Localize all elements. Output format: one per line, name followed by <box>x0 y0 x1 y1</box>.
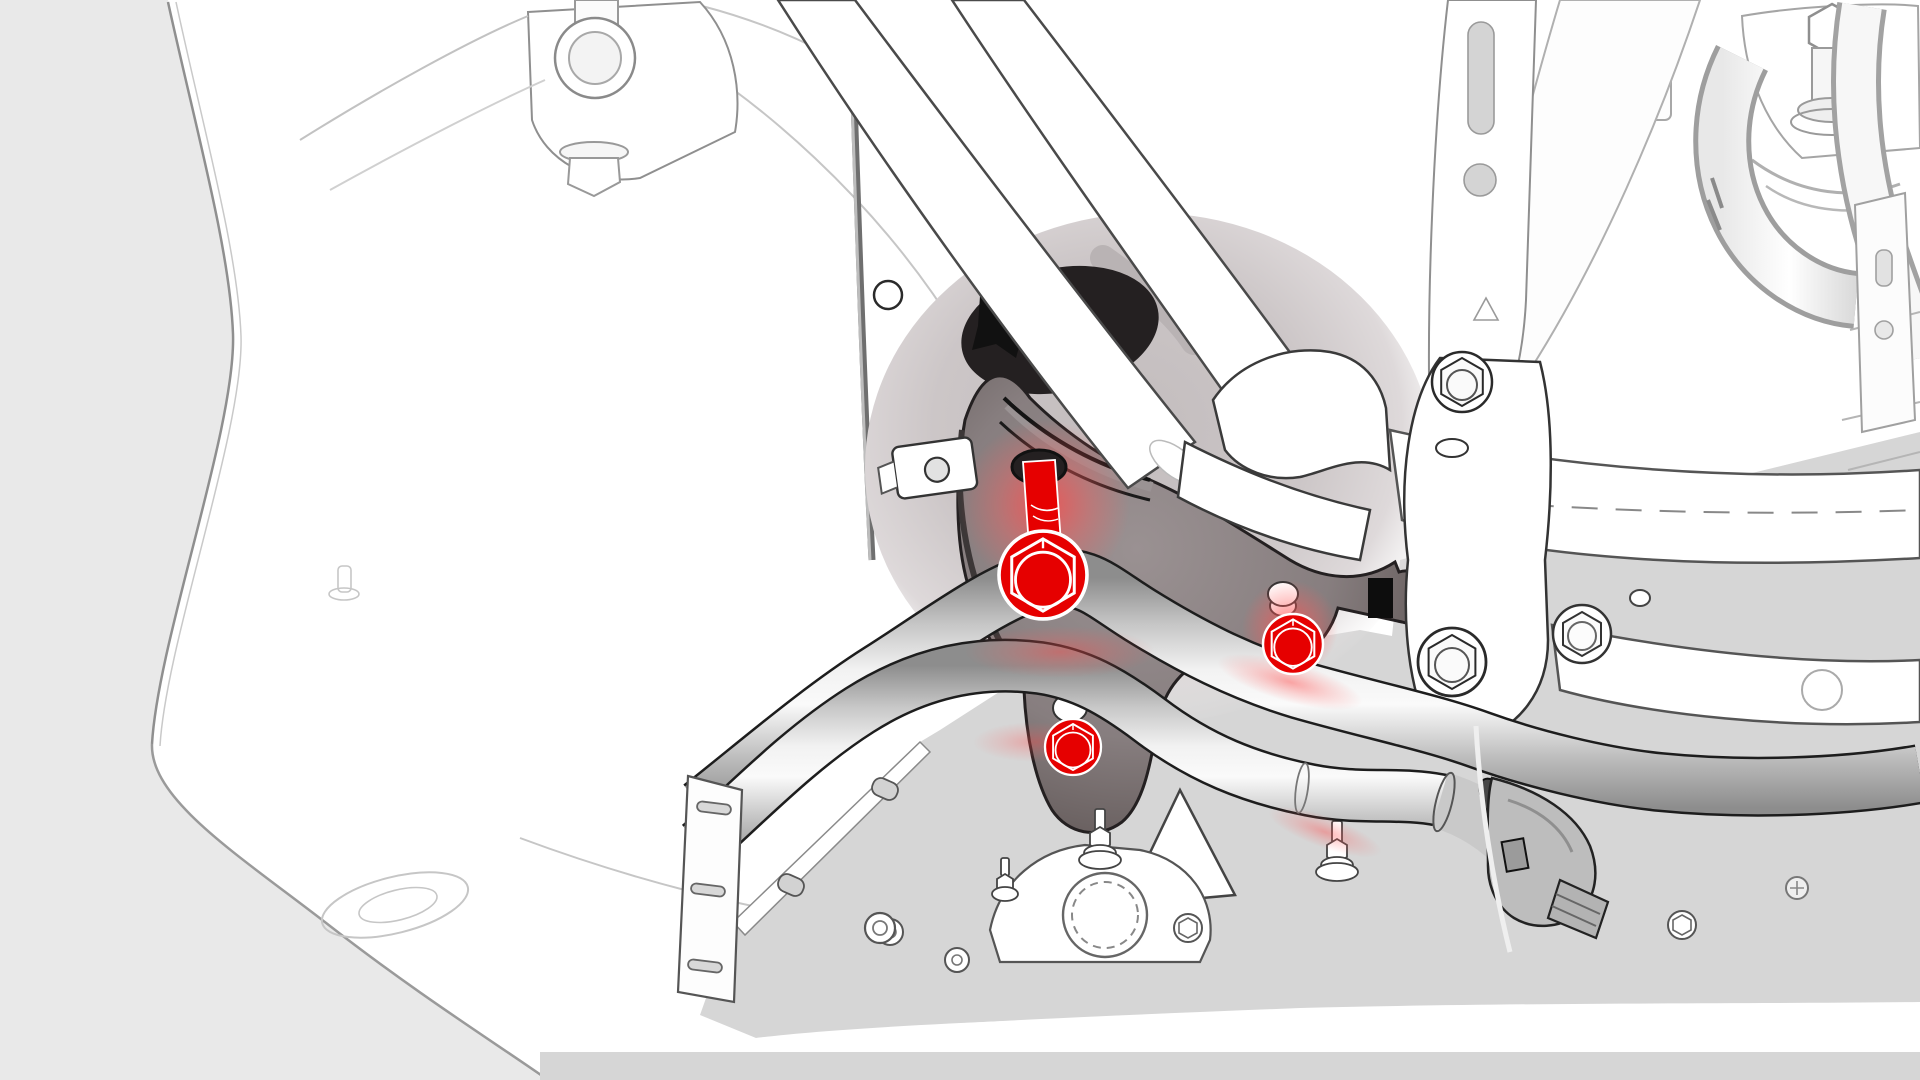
highlighted-bolt-lower <box>1045 719 1101 775</box>
liner-bolt <box>865 913 895 943</box>
small-stud <box>1630 590 1650 606</box>
highlighted-bolt-main <box>999 531 1087 619</box>
bracket-hole <box>1464 164 1496 196</box>
knuckle-bolt-top <box>1432 352 1492 412</box>
bottom-gray-strip <box>540 1052 1920 1080</box>
bracket-slot <box>1468 22 1494 134</box>
service-manual-illustration <box>0 0 1920 1080</box>
subframe-bolt-right <box>1553 605 1611 663</box>
highlighted-bolt-right <box>1263 614 1323 674</box>
steering-knuckle <box>1404 352 1550 742</box>
panel-hole <box>874 281 902 309</box>
frame-slot-hole <box>1368 578 1393 618</box>
liner-slotted-bracket <box>678 776 742 1002</box>
knuckle-bolt-bottom <box>1418 628 1486 696</box>
underbody-diagram <box>0 0 1920 1080</box>
